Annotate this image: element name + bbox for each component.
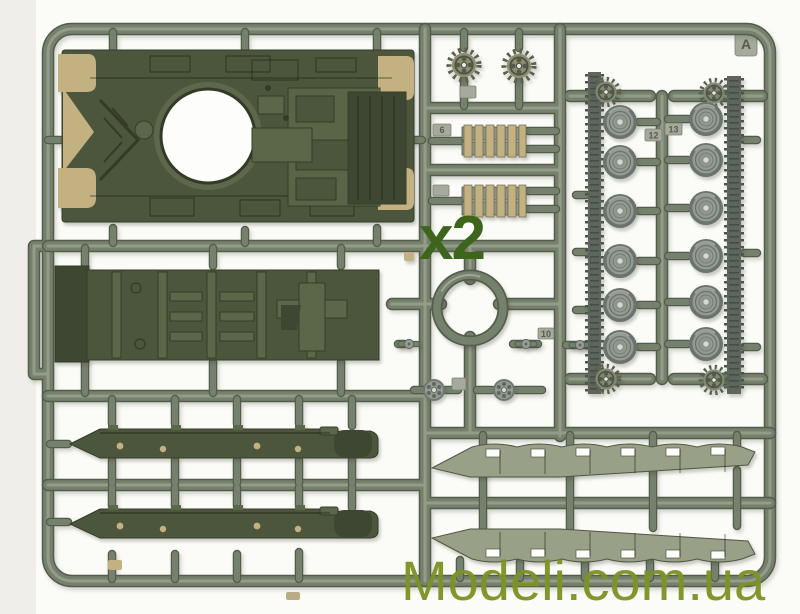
part-side-panel-upper [70,425,378,458]
part-drive-sprockets-top [449,50,534,81]
track-section-top [462,125,526,157]
part-side-panel-lower [70,505,378,538]
watermark-text: Modeli.com.ua [401,549,766,612]
part-upper-hull [58,50,414,222]
part-number-idler-group: 10 [541,329,551,339]
road-wheels-left-column [603,105,637,364]
molding-flash [108,560,122,570]
sprue-letter: A [741,36,751,52]
part-turret-ring [425,263,515,353]
part-number-track-section: 6 [439,125,444,135]
track-run-left [588,72,601,394]
part-number-left-wheel-column: 12 [648,131,658,141]
quantity-marking: x2 [419,204,484,273]
road-wheels-right-column [689,102,723,361]
track-run-right [727,76,741,394]
molding-flash [286,592,300,600]
part-fender-upper [432,444,755,477]
part-number-right-wheel-column: 13 [668,125,678,135]
sprue-photo: A [0,0,800,614]
sprue-scene: A [0,0,800,614]
part-lower-hull [55,266,379,362]
